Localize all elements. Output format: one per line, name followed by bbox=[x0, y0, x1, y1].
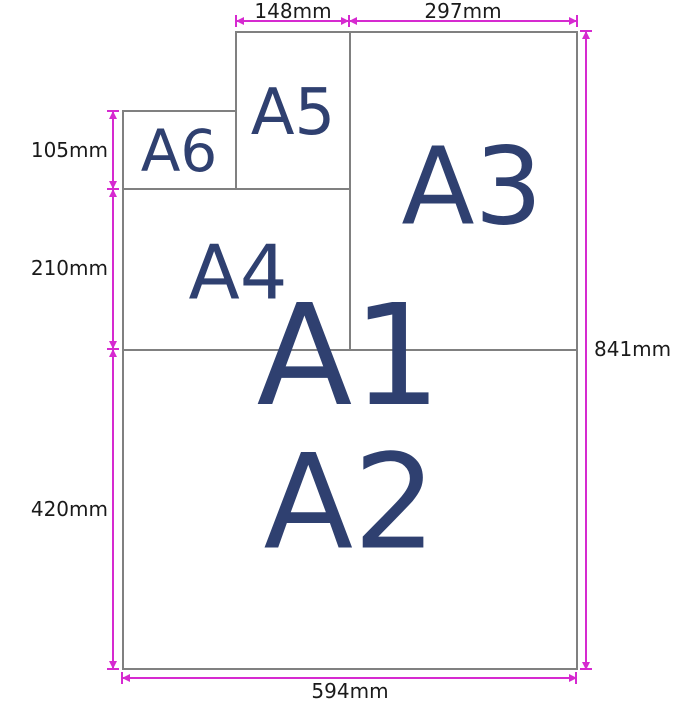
label-a3: A3 bbox=[401, 135, 542, 242]
label-a5: A5 bbox=[251, 81, 336, 145]
border-bottom-edge bbox=[122, 668, 578, 670]
dim-line-210mm bbox=[112, 189, 114, 349]
border-top-edge bbox=[235, 31, 578, 33]
dim-label-297mm: 297mm bbox=[424, 1, 501, 21]
paper-sizes-diagram: A1 A2 A3 A4 A5 A6 148mm 297mm 105mm 210m… bbox=[0, 0, 700, 700]
dim-line-420mm bbox=[112, 349, 114, 669]
dim-label-148mm: 148mm bbox=[254, 1, 331, 21]
dim-tick bbox=[580, 30, 592, 32]
dim-tick bbox=[575, 672, 577, 684]
label-a6: A6 bbox=[141, 122, 218, 180]
dim-label-105mm: 105mm bbox=[31, 140, 108, 160]
dim-tick bbox=[107, 668, 119, 670]
dim-tick bbox=[235, 15, 237, 27]
dim-label-420mm: 420mm bbox=[31, 499, 108, 519]
dim-tick bbox=[107, 110, 119, 112]
dim-label-210mm: 210mm bbox=[31, 258, 108, 278]
dim-tick bbox=[580, 668, 592, 670]
dim-tick bbox=[348, 15, 350, 27]
dim-tick bbox=[107, 348, 119, 350]
dim-tick bbox=[121, 672, 123, 684]
border-a6-top bbox=[122, 110, 237, 112]
border-right-edge bbox=[576, 31, 578, 670]
dim-label-594mm: 594mm bbox=[311, 681, 388, 701]
dim-label-841mm: 841mm bbox=[594, 339, 671, 359]
label-a4: A4 bbox=[188, 236, 287, 311]
dim-line-105mm bbox=[112, 111, 114, 189]
label-a2: A2 bbox=[264, 437, 437, 568]
dim-line-841mm bbox=[585, 31, 587, 670]
dim-tick bbox=[107, 188, 119, 190]
dim-tick bbox=[576, 15, 578, 27]
border-left-edge bbox=[122, 110, 124, 670]
border-a5-left bbox=[235, 31, 237, 190]
